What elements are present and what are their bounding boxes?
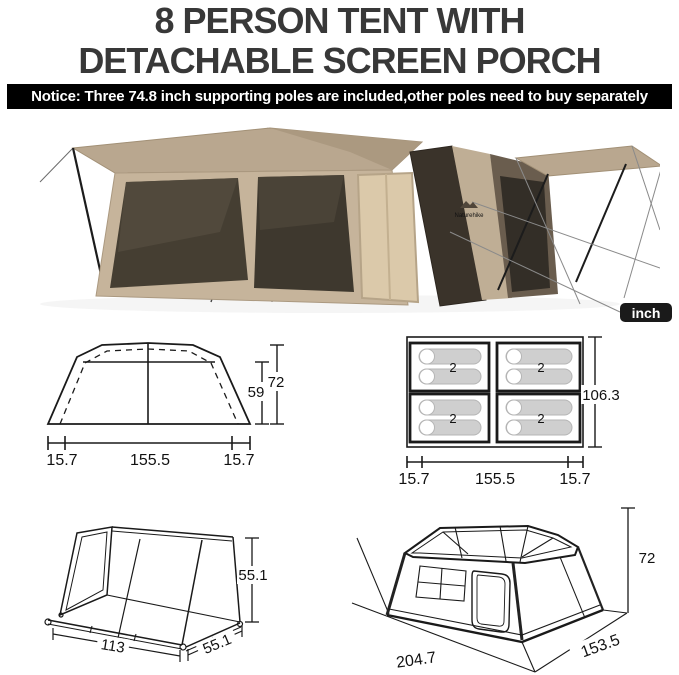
notice-text: Notice: Three 74.8 inch supporting poles…	[31, 88, 648, 105]
floor-plan-bottom-dim	[407, 456, 583, 468]
porch-center-brace	[118, 539, 140, 638]
awning-pole-left	[73, 148, 104, 288]
notice-bar: Notice: Three 74.8 inch supporting poles…	[7, 84, 672, 109]
pad-count-br: 2	[537, 411, 544, 426]
porch-pole-rear	[576, 164, 626, 282]
front-view-inner-dashed	[60, 349, 238, 424]
porch-depth-label: 55.1	[200, 631, 234, 658]
product-infographic-page: 8 PERSON TENT WITH DETACHABLE SCREEN POR…	[0, 0, 679, 675]
floor-plan-seg-left-label: 15.7	[398, 471, 429, 488]
pad-count-bl: 2	[449, 411, 456, 426]
left-corner-pole	[387, 553, 405, 615]
roof-inner-frame	[412, 530, 571, 558]
brand-logo-text: Naturehike	[454, 213, 484, 219]
mesh-window-2-sheen	[258, 175, 344, 230]
porch-top-rail	[112, 527, 233, 537]
pad-count-tr: 2	[537, 360, 544, 375]
porch-back-base	[107, 595, 240, 622]
porch-front-right-edge	[182, 540, 202, 645]
front-view-total-height-label: 72	[268, 374, 285, 391]
floor-plan-diagram: 2 2 2 2 106.3 15.7 155.5 15.7	[398, 337, 621, 488]
floor-plan-depth-label: 106.3	[582, 387, 620, 404]
front-view-diagram: 59 72 15.7 155.5 15.7	[46, 343, 288, 469]
tent3d-height-dim	[621, 508, 635, 613]
right-wall-seam	[560, 557, 585, 618]
front-view-bottom-dim	[48, 436, 250, 450]
front-view-inner-height-label: 59	[248, 384, 265, 401]
porch-width-label: 113	[100, 636, 126, 657]
porch-frame-diagram: 55.1 113 55.1	[45, 527, 269, 662]
tent3d-height-label: 72	[639, 550, 656, 567]
front-view-seg-right-label: 15.7	[223, 452, 254, 469]
porch-height-label: 55.1	[238, 567, 267, 584]
front-corner-pole	[513, 563, 522, 640]
tent-3d-diagram: 72 153.5 204.7	[352, 508, 655, 672]
title-line-2: DETACHABLE SCREEN PORCH	[0, 41, 679, 81]
roof-outline	[405, 526, 578, 563]
right-corner-pole	[578, 547, 603, 610]
front-window-grid	[416, 566, 466, 601]
floor-plan-seg-right-label: 15.7	[559, 471, 590, 488]
unit-badge-label: inch	[632, 305, 661, 321]
page-title: 8 PERSON TENT WITH DETACHABLE SCREEN POR…	[0, 1, 679, 81]
front-view-seg-mid-label: 155.5	[130, 452, 170, 469]
pad-count-tl: 2	[449, 360, 456, 375]
tent-photo-illustration: Naturehike	[20, 112, 660, 317]
front-view-seg-left-label: 15.7	[46, 452, 77, 469]
dimension-diagrams: 59 72 15.7 155.5 15.7	[0, 325, 679, 675]
front-door-inner	[477, 575, 505, 626]
floor-plan-seg-mid-label: 155.5	[475, 471, 515, 488]
title-line-1: 8 PERSON TENT WITH	[0, 1, 679, 41]
unit-badge: inch	[620, 303, 672, 322]
